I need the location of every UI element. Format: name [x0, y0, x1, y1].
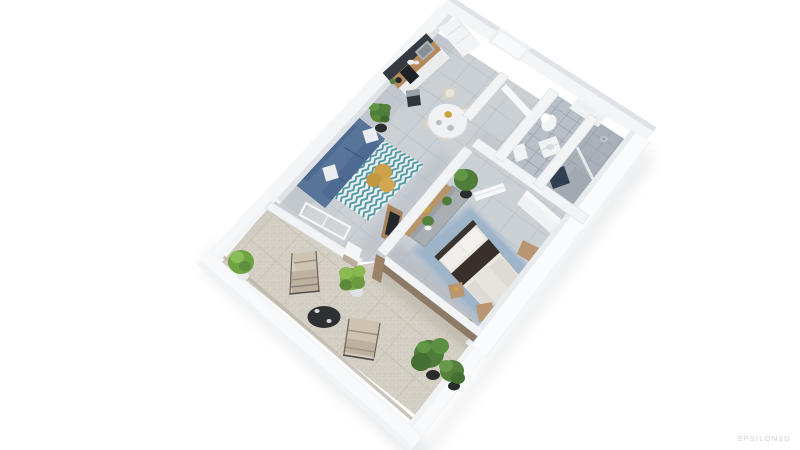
svg-text:ƎPSILON3D: ƎPSILON3D	[737, 434, 791, 443]
